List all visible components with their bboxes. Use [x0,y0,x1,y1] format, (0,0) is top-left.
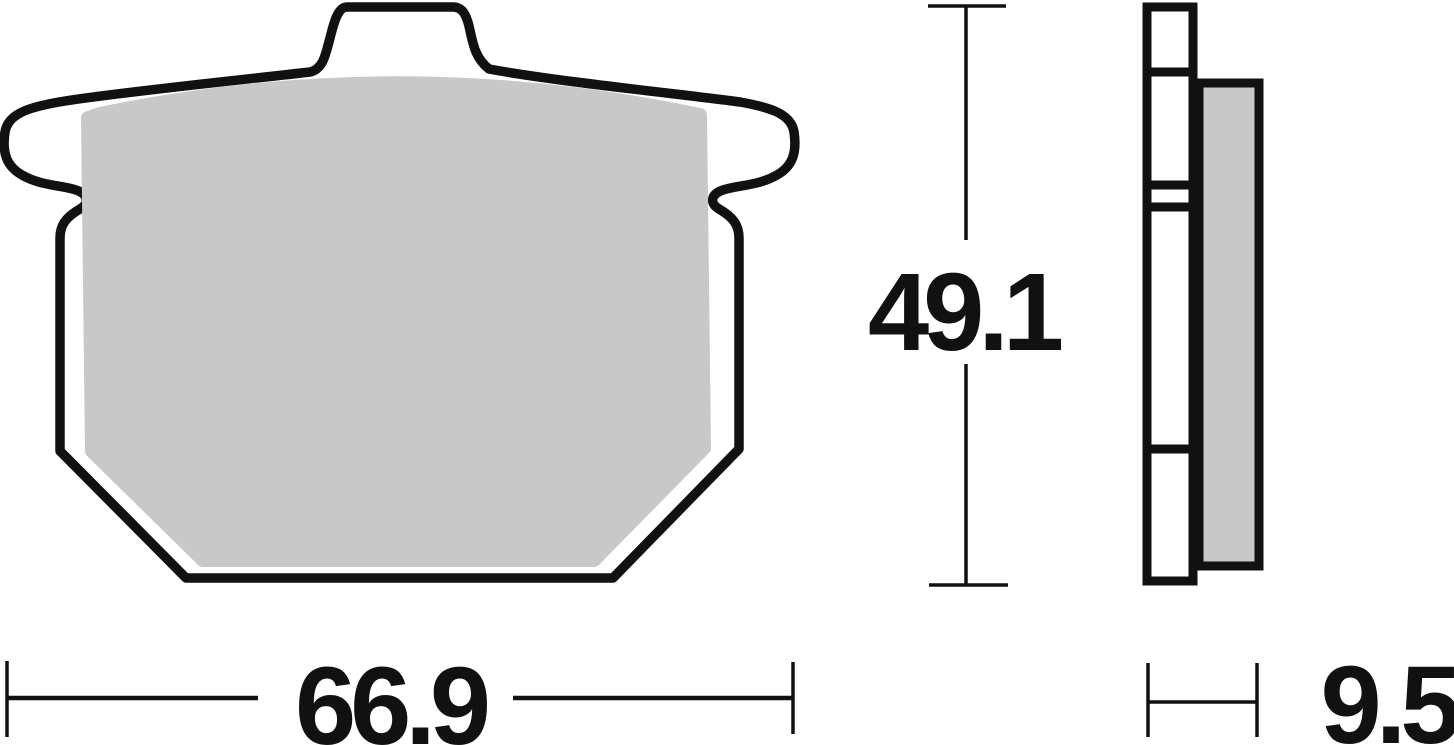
front-view [4,7,795,578]
side-view [1143,7,1259,581]
dimension-height: 49.1 [868,6,1062,585]
friction-material-front [88,83,704,560]
dimension-thickness: 9.5 [1148,644,1454,745]
height-dimension-label: 49.1 [868,251,1062,374]
brake-pad-drawing: 49.1 66.9 9.5 [0,0,1454,745]
dimension-width: 66.9 [7,645,793,745]
friction-material-side [1199,83,1259,566]
width-dimension-label: 66.9 [295,645,488,745]
backing-plate-side [1147,7,1193,581]
technical-drawing-canvas: 49.1 66.9 9.5 [0,0,1454,745]
thickness-dimension-label: 9.5 [1321,644,1454,745]
